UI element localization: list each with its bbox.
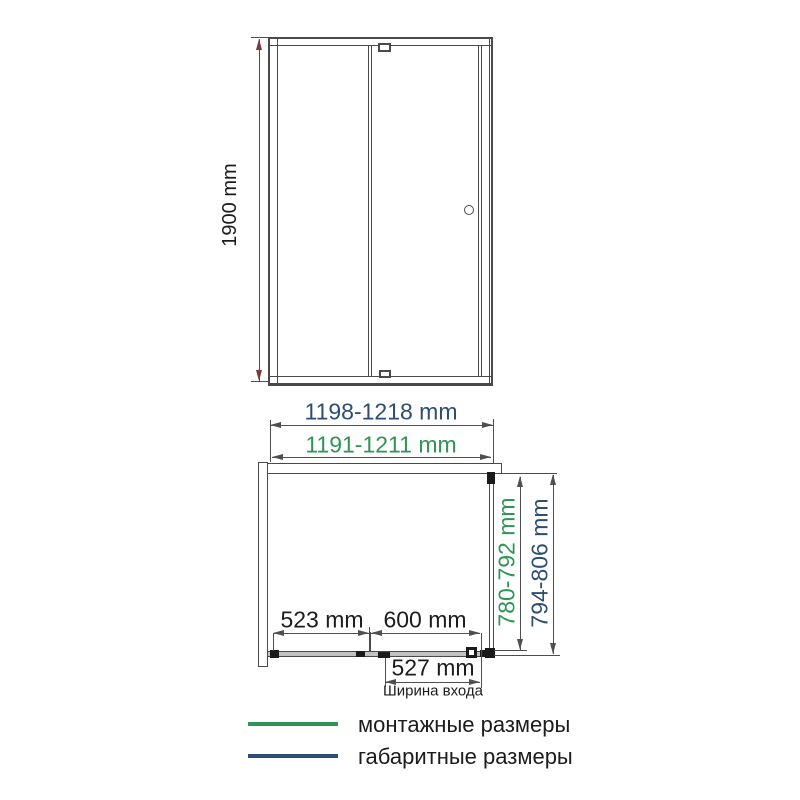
top-roller-bracket	[378, 43, 391, 52]
arrow-right-icon	[480, 454, 491, 460]
arrow-down-icon	[550, 643, 556, 654]
entry-width-label: 527 mm	[391, 657, 474, 680]
legend-overall-swatch	[248, 754, 338, 758]
dimension-line	[270, 425, 493, 426]
arrow-right-icon	[469, 630, 480, 636]
dimension-line	[272, 457, 491, 458]
extension-line	[481, 633, 482, 688]
dimension-line	[553, 475, 554, 654]
arrow-up-icon	[550, 474, 556, 485]
legend-overall-label: габаритные размеры	[358, 744, 573, 770]
arrow-up-icon	[517, 476, 523, 487]
arrow-right-icon	[482, 422, 493, 428]
corner-connector-top	[487, 472, 495, 484]
middle-tick	[369, 627, 370, 639]
shower-door-dimension-drawing: 1900 mm 1198-1218 mm 1191-1211 mm	[0, 0, 800, 800]
arrow-left-icon	[272, 454, 283, 460]
door-panel-label: 600 mm	[383, 609, 466, 632]
door-handle	[464, 205, 474, 215]
overall-depth-label: 794-806 mm	[529, 498, 552, 627]
track-fixed-block	[356, 651, 365, 657]
extension-line	[494, 655, 560, 656]
floor-top-edge	[268, 473, 557, 474]
entry-width-caption: Ширина входа	[383, 684, 483, 699]
fixed-panel-label: 523 mm	[280, 609, 363, 632]
glass-divider-profile	[368, 45, 372, 376]
arrow-right-icon	[358, 630, 369, 636]
overall-width-label: 1198-1218 mm	[305, 401, 458, 424]
bottom-guide-bracket	[379, 370, 391, 378]
legend-mounting-swatch	[248, 722, 338, 726]
extension-tick	[251, 381, 268, 382]
arrow-up-icon	[256, 39, 262, 50]
arrow-left-icon	[270, 422, 281, 428]
extension-tick	[251, 37, 268, 38]
arrow-down-icon	[256, 370, 262, 381]
frame-left-profile	[268, 37, 278, 386]
arrow-left-icon	[273, 630, 284, 636]
legend-mounting-label: монтажные размеры	[358, 712, 570, 738]
dimension-line	[259, 39, 260, 381]
track-left-cap	[270, 650, 279, 658]
left-wall-profile	[258, 462, 268, 667]
extension-line	[270, 420, 271, 462]
arrow-left-icon	[371, 630, 382, 636]
extension-line	[494, 650, 527, 651]
mounting-width-label: 1191-1211 mm	[305, 434, 456, 457]
mounting-depth-label: 780-792 mm	[496, 497, 519, 626]
arrow-down-icon	[517, 639, 523, 650]
track-door-block	[378, 652, 390, 658]
height-dimension-label: 1900 mm	[220, 163, 240, 246]
dimension-line	[520, 477, 521, 650]
door-glass-right-edge	[478, 45, 482, 376]
frame-right-profile	[489, 37, 493, 386]
